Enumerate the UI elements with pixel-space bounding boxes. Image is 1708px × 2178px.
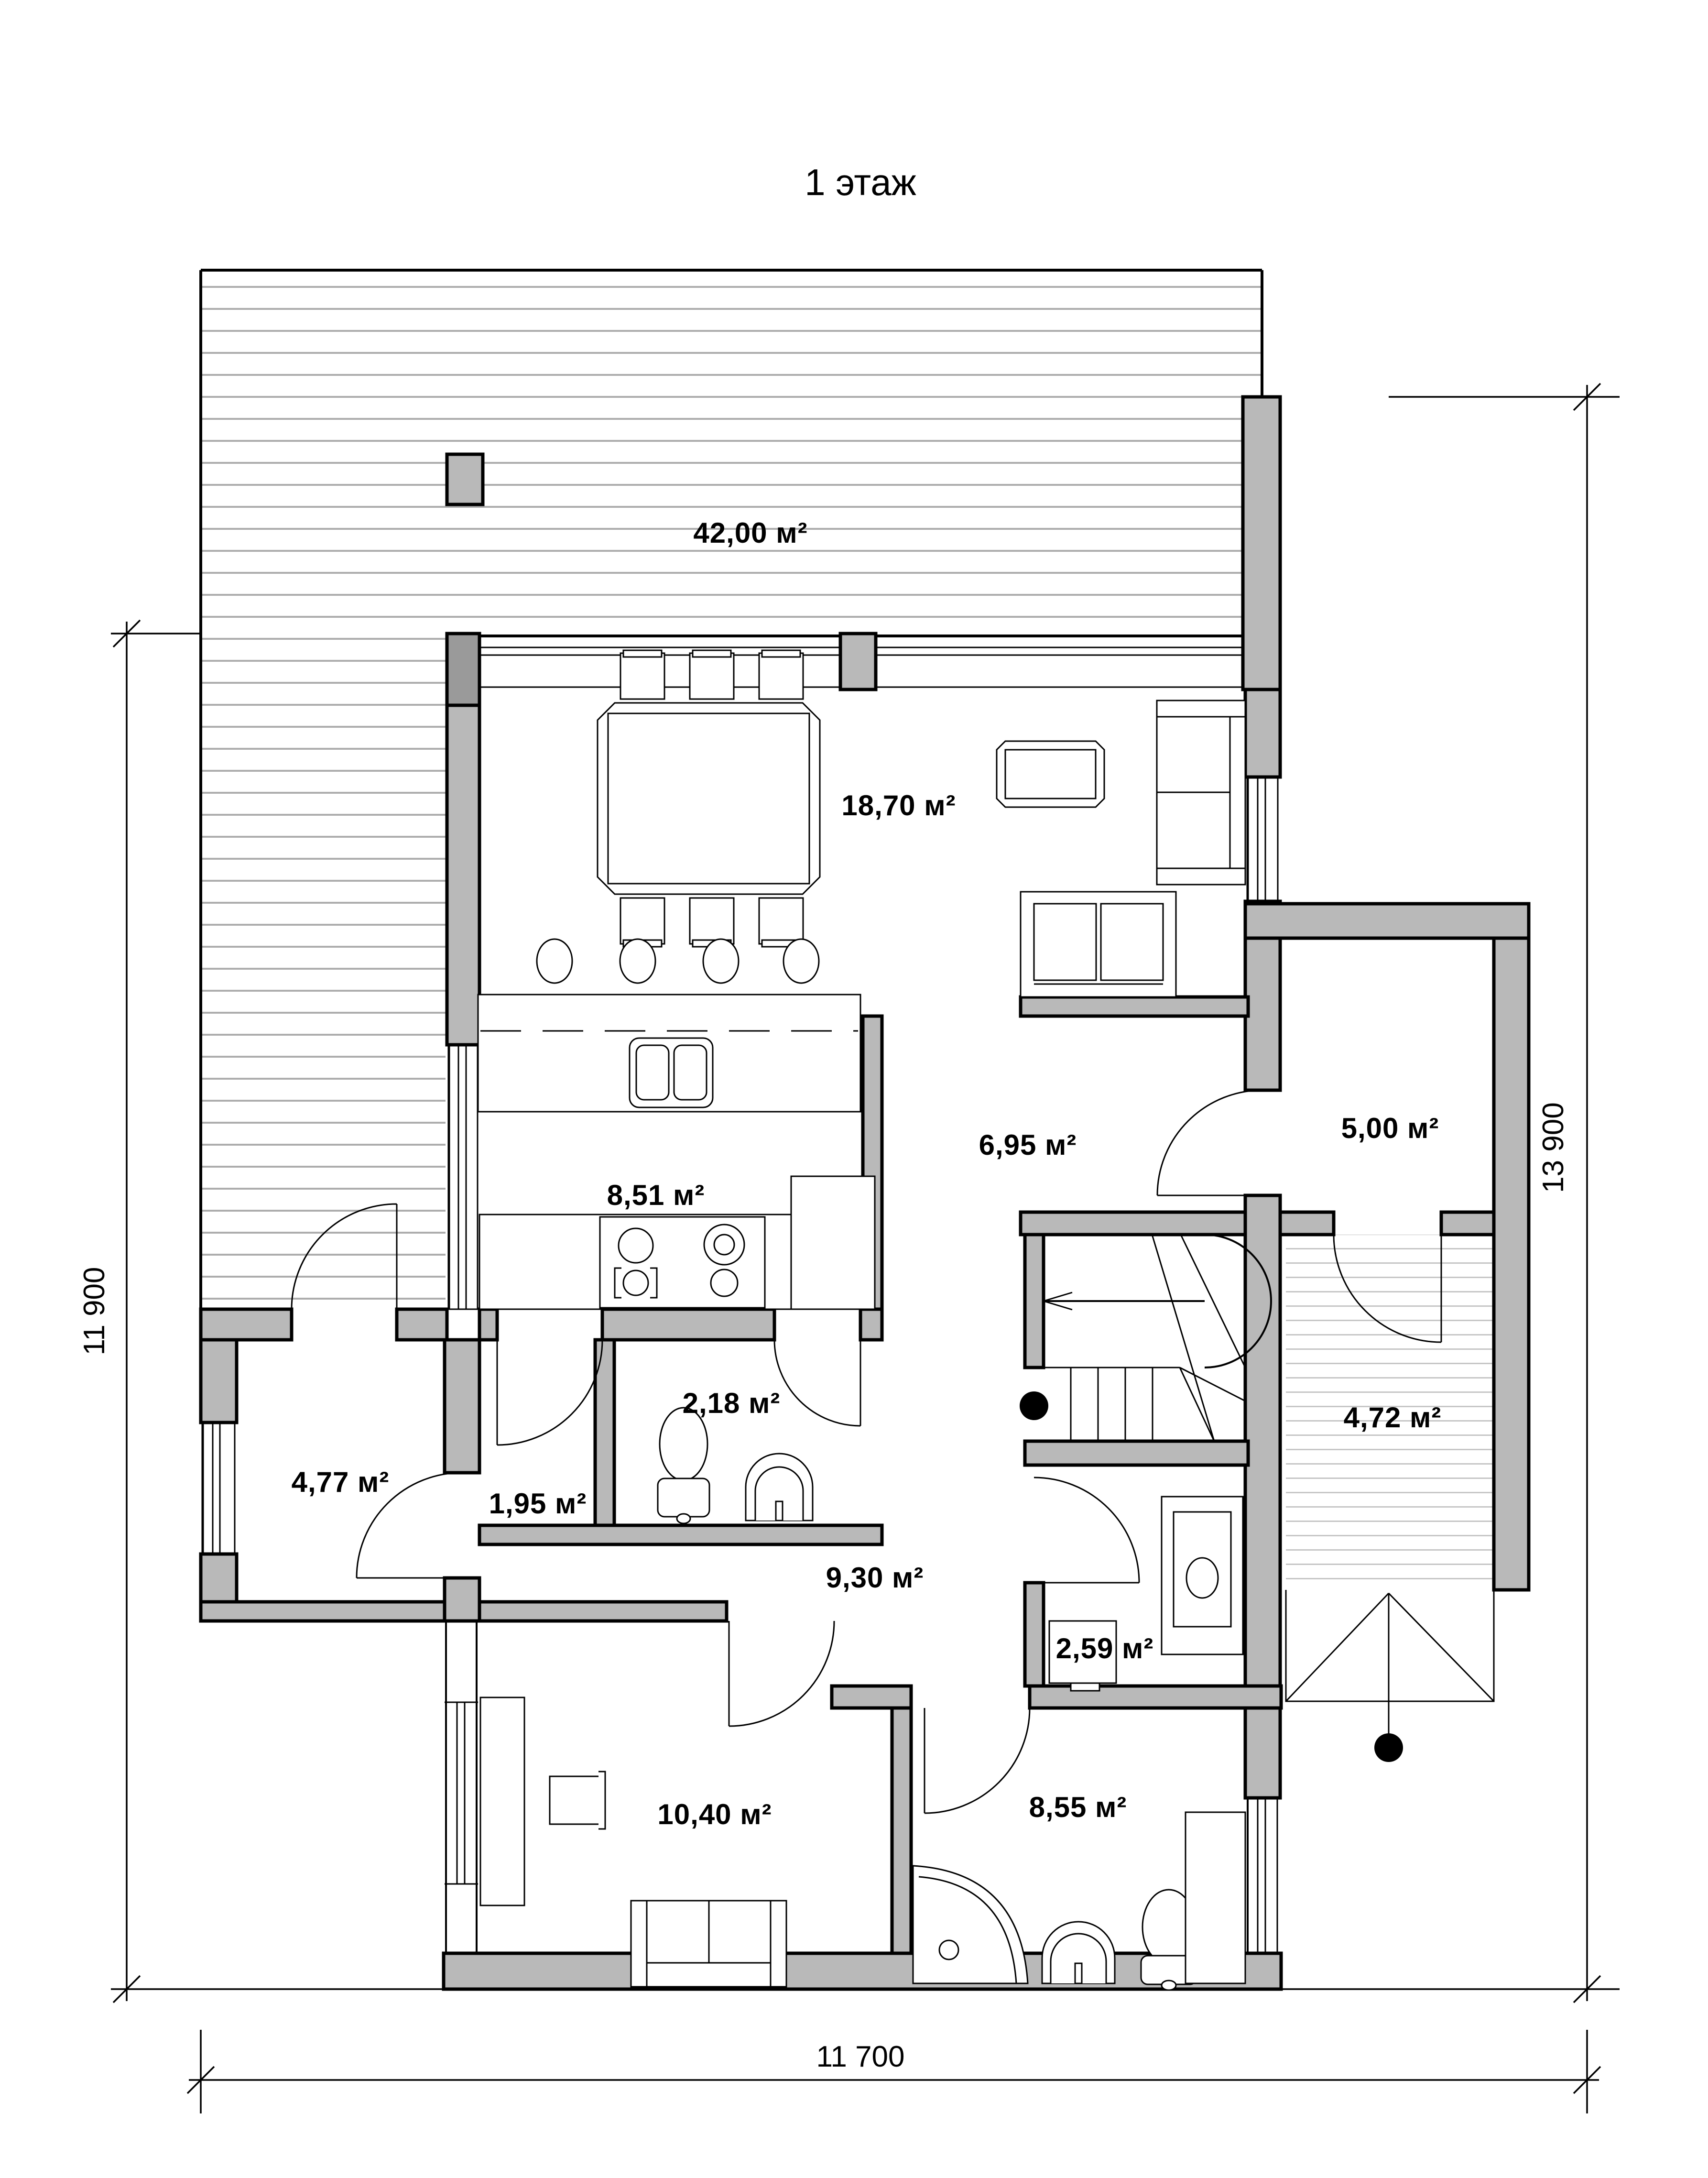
- wall-stairs-north: [1021, 1212, 1245, 1235]
- room-label-hallway: 6,95 м²: [979, 1129, 1077, 1161]
- wall-bathroom-north: [1030, 1686, 1281, 1708]
- room-label-mudroom: 4,77 м²: [292, 1466, 390, 1498]
- wall-mudroom-north-a: [201, 1309, 292, 1340]
- wall-mudroom-east-a: [445, 1340, 479, 1473]
- wall-wc-north-c: [860, 1309, 882, 1340]
- door-hall-bathroom: [925, 1708, 1030, 1813]
- stove: [600, 1217, 765, 1308]
- dining-table: [598, 703, 820, 894]
- room-label-storage: 5,00 м²: [1341, 1112, 1439, 1144]
- section-marker-stairs: [1020, 1391, 1048, 1420]
- door-hall-boiler: [1034, 1478, 1139, 1583]
- water-heater: [1162, 1497, 1243, 1654]
- wall-wc-north-b: [602, 1309, 774, 1340]
- window-kitchen-west: [447, 1045, 479, 1309]
- wall-mudroom-north-b: [397, 1309, 447, 1340]
- dining-chairs-bottom: [620, 898, 803, 947]
- door-kitchen-lobby: [497, 1340, 602, 1445]
- living-sofa: [1157, 700, 1245, 885]
- room-label-bathroom: 8,55 м²: [1029, 1791, 1127, 1823]
- window-bathroom-east: [1245, 1798, 1280, 1975]
- sink-bowl-right: [674, 1045, 707, 1100]
- door-hallway-storage: [1157, 1090, 1262, 1195]
- room-label-entry: 4,72 м²: [1344, 1401, 1442, 1434]
- wall-corner-block: [447, 634, 479, 705]
- entrance-steps: [1286, 1590, 1494, 1736]
- wall-entry-north-left: [1280, 1212, 1334, 1235]
- wall-stairs-south: [1025, 1441, 1248, 1465]
- staircase: [1044, 1235, 1271, 1441]
- room-label-wc: 2,18 м²: [683, 1387, 781, 1419]
- coffee-table: [997, 741, 1104, 807]
- kitchen-island: [478, 995, 860, 1112]
- room-label-kitchen: 8,51 м²: [607, 1179, 705, 1211]
- wall-window-column: [840, 634, 876, 690]
- room-label-office: 10,40 м²: [657, 1798, 772, 1830]
- wall-boiler-west: [1025, 1583, 1044, 1686]
- window-living-east: [1245, 777, 1280, 901]
- burner-3: [623, 1270, 648, 1295]
- wall-chimney-column: [1243, 397, 1280, 690]
- kitchen-cabinet: [791, 1176, 875, 1309]
- wall-mudroom-west-a: [201, 1340, 237, 1423]
- door-kitchen-wc: [774, 1340, 860, 1426]
- wall-hall-south-mid: [832, 1686, 911, 1708]
- terrace-hatch-top: [202, 272, 1261, 634]
- window-office-west: [445, 1621, 478, 1953]
- bathroom-cabinet: [1186, 1812, 1245, 1983]
- wardrobe: [1021, 892, 1176, 997]
- room-label-lobby: 1,95 м²: [489, 1488, 587, 1520]
- wall-storage-north: [1245, 904, 1529, 938]
- terrace-hatch-left: [202, 634, 446, 1309]
- office-desk: [480, 1697, 524, 1905]
- floor-plan-page: 1 этаж 42,00 м² 18,70 м² 8,51 м² 6,95 м²…: [0, 0, 1708, 2178]
- terrace-column: [447, 454, 483, 504]
- bathroom-sink: [1042, 1922, 1115, 1983]
- room-label-boiler: 2,59 м²: [1056, 1632, 1154, 1664]
- section-marker-entry: [1374, 1733, 1403, 1762]
- wc-sink: [746, 1454, 813, 1521]
- wall-wc-north-a: [479, 1309, 497, 1340]
- corner-bathtub: [913, 1866, 1028, 1983]
- burner-4: [711, 1270, 738, 1296]
- dining-chairs-top: [620, 650, 803, 699]
- window-mudroom-west: [201, 1423, 237, 1554]
- dimension-label-bottom: 11 700: [816, 2040, 904, 2073]
- dimension-label-left: 11 900: [78, 1267, 111, 1355]
- dimension-label-right: 13 900: [1537, 1102, 1570, 1193]
- wall-stairs-west: [1025, 1235, 1044, 1368]
- page-title: 1 этаж: [805, 161, 916, 203]
- wc-toilet: [658, 1408, 709, 1523]
- wall-wardrobe-back: [1021, 997, 1248, 1016]
- floor-plan-drawing: 1 этаж 42,00 м² 18,70 м² 8,51 м² 6,95 м²…: [0, 0, 1708, 2178]
- sink-bowl-left: [636, 1045, 669, 1100]
- office-chair: [550, 1772, 605, 1829]
- wall-mudroom-east-b: [445, 1578, 479, 1621]
- door-hall-office: [729, 1621, 834, 1726]
- office-sofa: [631, 1901, 786, 1987]
- wall-entry-north-right: [1441, 1212, 1494, 1235]
- room-label-terrace: 42,00 м²: [693, 517, 807, 549]
- wall-wc-south: [479, 1525, 882, 1544]
- wall-spine-upper: [1245, 690, 1280, 777]
- room-label-hall: 9,30 м²: [826, 1562, 924, 1594]
- wall-rooms-divider: [892, 1708, 911, 1989]
- wall-east-outer: [1494, 938, 1529, 1590]
- burner-1: [619, 1228, 653, 1263]
- room-label-living: 18,70 м²: [841, 789, 956, 821]
